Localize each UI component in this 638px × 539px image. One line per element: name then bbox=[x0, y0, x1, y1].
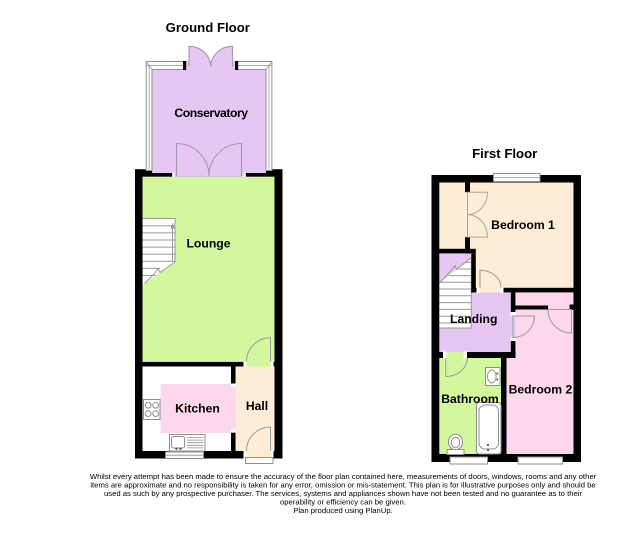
svg-text:Lounge: Lounge bbox=[186, 236, 230, 250]
svg-text:Hall: Hall bbox=[246, 399, 268, 413]
svg-text:Ground Floor: Ground Floor bbox=[166, 20, 250, 35]
svg-text:Bedroom 2: Bedroom 2 bbox=[509, 383, 573, 397]
svg-text:First Floor: First Floor bbox=[472, 146, 537, 161]
svg-text:Plan produced using PlanUp.: Plan produced using PlanUp. bbox=[293, 506, 393, 515]
svg-text:Kitchen: Kitchen bbox=[175, 402, 220, 416]
svg-text:Bedroom 1: Bedroom 1 bbox=[491, 218, 555, 232]
svg-text:Conservatory: Conservatory bbox=[174, 106, 248, 120]
svg-text:Landing: Landing bbox=[450, 312, 497, 326]
svg-text:Bathroom: Bathroom bbox=[441, 392, 499, 406]
